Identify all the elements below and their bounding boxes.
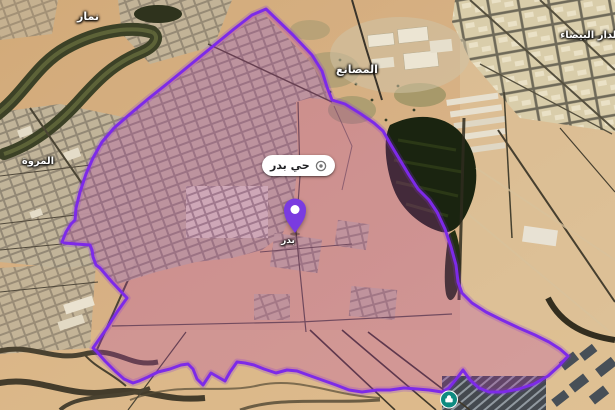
district-marker-pin[interactable] <box>275 195 315 243</box>
pin-body <box>284 199 306 234</box>
district-name-chip[interactable]: حي بدر <box>262 155 335 176</box>
district-name-chip-label: حي بدر <box>270 159 310 172</box>
map-label-masani[interactable]: المصانع <box>327 63 387 76</box>
map-canvas[interactable]: نمار المروة المصانع الدار البيضاء بدر حي… <box>0 0 615 410</box>
map-label-dar-baida[interactable]: الدار البيضاء <box>545 30 615 41</box>
mosque-poi-icon[interactable] <box>439 390 459 410</box>
location-pin-icon <box>315 160 327 172</box>
map-label-marwah[interactable]: المروة <box>8 156 68 167</box>
map-label-namar[interactable]: نمار <box>68 10 108 23</box>
pin-dot <box>291 205 300 214</box>
